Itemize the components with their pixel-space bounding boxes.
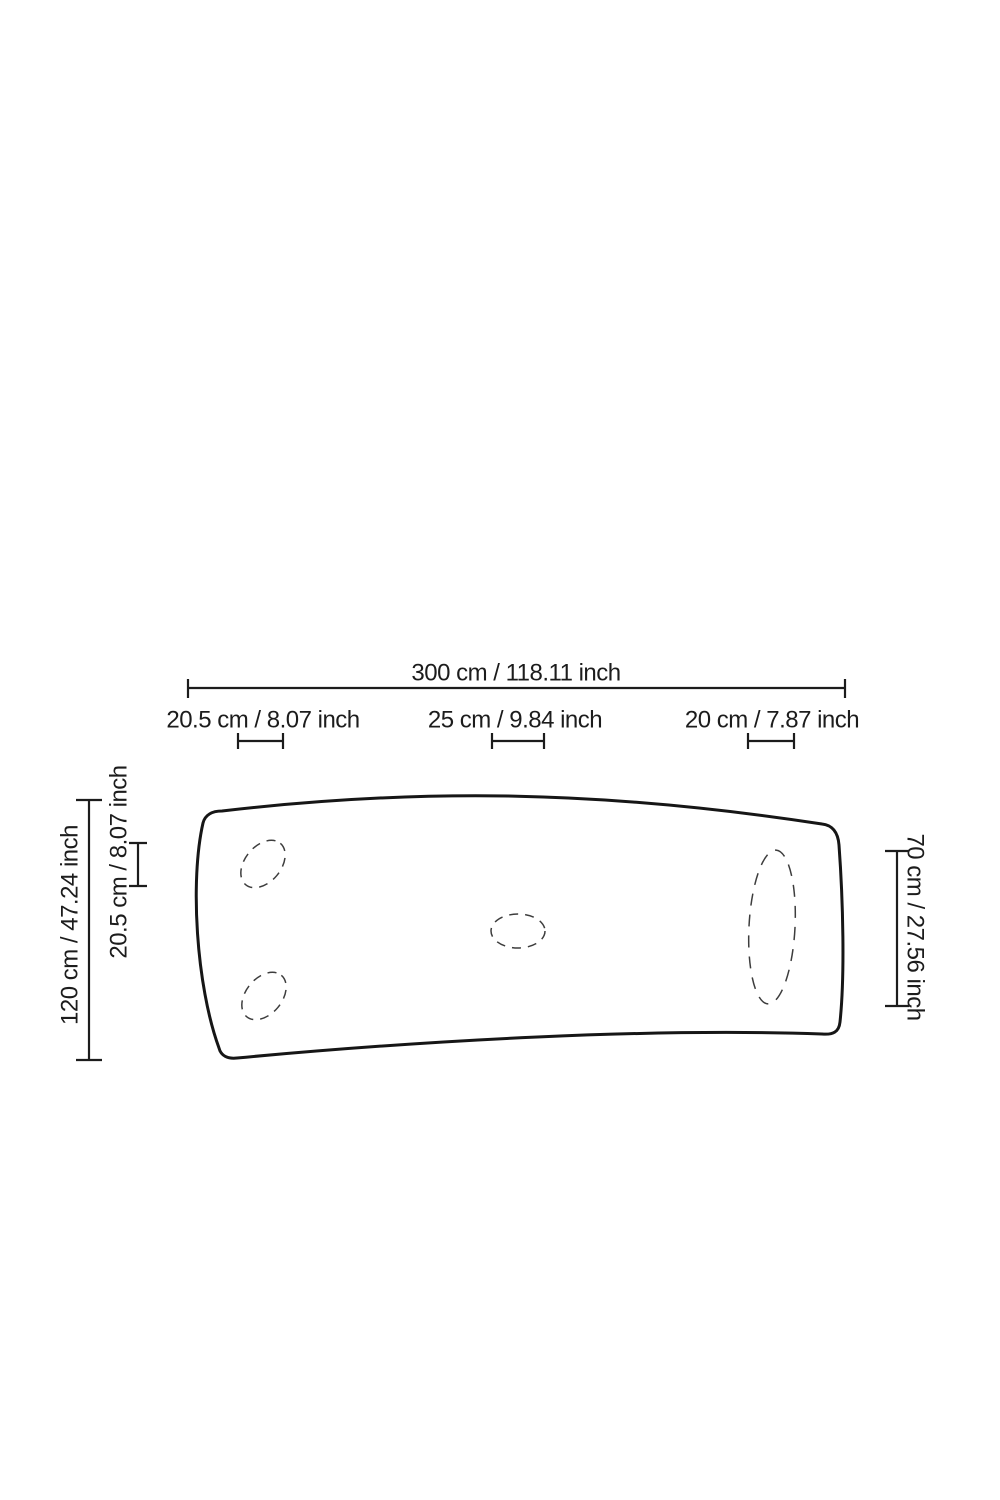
- dim-foot-right-width: 20 cm / 7.87 inch: [685, 706, 859, 749]
- dim-overall-width: 300 cm / 118.11 inch: [188, 659, 845, 698]
- foot-center-width-label: 25 cm / 9.84 inch: [428, 706, 602, 733]
- dimension-diagram-page: 300 cm / 118.11 inch 20.5 cm / 8.07 inch…: [0, 0, 1000, 1500]
- foot-left-depth-label: 20.5 cm / 8.07 inch: [105, 765, 132, 958]
- overall-depth-label: 120 cm / 47.24 inch: [56, 825, 83, 1025]
- foot-right-width-label: 20 cm / 7.87 inch: [685, 706, 859, 733]
- overall-width-label: 300 cm / 118.11 inch: [411, 659, 620, 686]
- dimension-diagram: 300 cm / 118.11 inch 20.5 cm / 8.07 inch…: [0, 0, 1000, 1500]
- dim-foot-left-depth: 20.5 cm / 8.07 inch: [105, 765, 147, 958]
- dim-foot-center-width: 25 cm / 9.84 inch: [428, 706, 602, 749]
- tabletop-outline: [196, 796, 843, 1058]
- dim-overall-depth: 120 cm / 47.24 inch: [56, 800, 102, 1060]
- dim-foot-left-width: 20.5 cm / 8.07 inch: [166, 706, 359, 749]
- dim-foot-right-depth: 70 cm / 27.56 inch: [885, 833, 929, 1020]
- foot-left-width-label: 20.5 cm / 8.07 inch: [166, 706, 359, 733]
- foot-right-depth-label: 70 cm / 27.56 inch: [902, 833, 929, 1020]
